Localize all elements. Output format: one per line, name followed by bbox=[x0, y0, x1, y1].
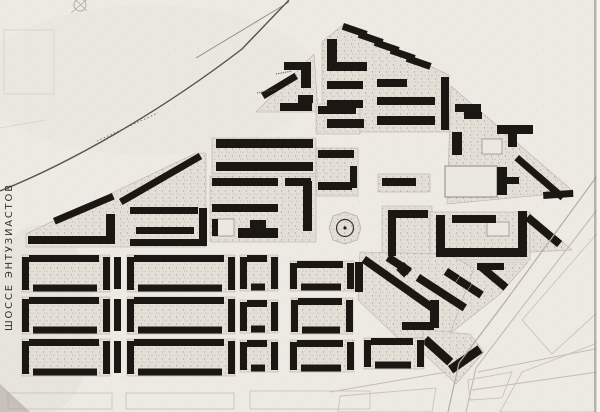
center-south-building bbox=[250, 220, 266, 229]
residential-block-building bbox=[228, 257, 235, 290]
wedge-building bbox=[28, 236, 114, 244]
center-south-building bbox=[212, 219, 218, 236]
residential-block-building bbox=[33, 285, 97, 292]
residential-block-building bbox=[33, 369, 97, 376]
pale-building bbox=[487, 222, 509, 236]
residential-block-building bbox=[127, 257, 134, 290]
pentagon-building bbox=[377, 116, 435, 125]
scan-edge-white bbox=[597, 0, 600, 412]
center-south-building bbox=[238, 228, 278, 238]
shosse-entuziastov-label: ШОССЕ ЭНТУЗИАСТОВ bbox=[4, 183, 15, 331]
residential-block-building bbox=[240, 342, 247, 370]
residential-block-building bbox=[138, 327, 222, 334]
residential-block-building bbox=[371, 338, 413, 345]
pale-hall-building bbox=[445, 166, 497, 197]
residential-block-building bbox=[290, 342, 297, 370]
diagonal-wedge-building bbox=[402, 322, 434, 330]
residential-block-building bbox=[301, 284, 341, 291]
residential-block-building bbox=[103, 257, 110, 290]
center-north-building bbox=[216, 139, 313, 148]
pentagon-building bbox=[327, 119, 364, 128]
midcol-building bbox=[318, 150, 354, 158]
residential-block-building bbox=[138, 369, 222, 376]
residential-block-building bbox=[290, 263, 297, 289]
residential-block-building bbox=[251, 326, 265, 333]
residential-block-building bbox=[271, 257, 278, 289]
triangle-building bbox=[497, 125, 533, 134]
midcol-building bbox=[318, 106, 356, 114]
residential-block-building bbox=[291, 300, 298, 332]
residential-block-building bbox=[347, 342, 354, 370]
residential-block-building bbox=[29, 339, 99, 346]
east-court-building bbox=[436, 248, 526, 257]
center-south-building bbox=[303, 181, 312, 231]
pentagon-building bbox=[441, 77, 449, 130]
urban-plan-map: ШОССЕ ЭНТУЗИАСТОВ bbox=[0, 0, 600, 412]
residential-block-building bbox=[240, 257, 247, 289]
east-plaza-building bbox=[382, 178, 416, 186]
triangle-building bbox=[497, 167, 507, 195]
center-north-building bbox=[216, 162, 313, 171]
scanned-plan-page: ШОССЕ ЭНТУЗИАСТОВ bbox=[0, 0, 600, 412]
midcol-building bbox=[318, 182, 352, 190]
residential-block-building bbox=[298, 298, 342, 305]
residential-block-building bbox=[240, 302, 247, 331]
inter-block-building bbox=[114, 341, 121, 373]
residential-block-building bbox=[251, 284, 265, 291]
inter-block-building bbox=[114, 257, 121, 289]
east-court-building bbox=[452, 215, 496, 223]
pentagon-building bbox=[327, 62, 367, 71]
residential-block-building bbox=[134, 255, 224, 262]
triangle-building bbox=[506, 177, 519, 184]
wedge-building bbox=[130, 239, 204, 246]
wedge-building bbox=[136, 227, 194, 234]
residential-block-building bbox=[346, 300, 353, 332]
residential-block-building bbox=[364, 340, 371, 367]
residential-block-building bbox=[375, 362, 411, 369]
residential-block-building bbox=[103, 299, 110, 332]
east-plaza-building bbox=[388, 210, 428, 218]
center-south-building bbox=[212, 178, 278, 186]
residential-block-building bbox=[22, 299, 29, 332]
east-court-building bbox=[518, 211, 527, 257]
residential-block-building bbox=[271, 342, 278, 370]
pale-building bbox=[482, 139, 502, 154]
triangle-building bbox=[464, 112, 482, 119]
residential-block-building bbox=[138, 285, 222, 292]
residential-block-building bbox=[22, 257, 29, 290]
hook-building bbox=[280, 103, 312, 111]
wedge-building bbox=[199, 208, 207, 246]
diagonal-wedge-building bbox=[355, 262, 363, 292]
residential-block-building bbox=[22, 341, 29, 374]
residential-block-building bbox=[297, 340, 343, 347]
residential-block-building bbox=[134, 297, 224, 304]
pentagon-building bbox=[377, 79, 407, 87]
residential-block-building bbox=[247, 255, 267, 262]
triangle-building bbox=[455, 104, 481, 112]
residential-block-building bbox=[134, 339, 224, 346]
hook-building bbox=[298, 95, 313, 103]
plaza-center-dot bbox=[343, 226, 346, 229]
hook-building bbox=[301, 62, 311, 88]
residential-block-building bbox=[103, 341, 110, 374]
wedge-building bbox=[130, 207, 198, 214]
residential-block-building bbox=[228, 299, 235, 332]
inter-block-building bbox=[114, 299, 121, 331]
residential-block-building bbox=[251, 365, 265, 372]
residential-block-building bbox=[347, 263, 354, 289]
residential-block-building bbox=[417, 340, 424, 367]
triangle-building bbox=[452, 132, 462, 155]
residential-block-building bbox=[302, 327, 340, 334]
residential-block-building bbox=[127, 341, 134, 374]
triangle-building bbox=[508, 134, 517, 147]
residential-block-building bbox=[29, 255, 99, 262]
pentagon-building bbox=[377, 97, 435, 105]
residential-block-building bbox=[247, 300, 267, 307]
residential-block-building bbox=[228, 341, 235, 374]
residential-block-building bbox=[29, 297, 99, 304]
wedge-building bbox=[106, 214, 115, 244]
scan-edge-line bbox=[594, 0, 597, 412]
midcol-building bbox=[350, 166, 357, 188]
residential-block-building bbox=[301, 365, 341, 372]
residential-block-building bbox=[247, 340, 267, 347]
residential-block-building bbox=[271, 302, 278, 331]
residential-block-building bbox=[127, 299, 134, 332]
residential-block-building bbox=[297, 261, 343, 268]
residential-block-building bbox=[33, 327, 97, 334]
pentagon-building bbox=[327, 81, 363, 89]
center-south-building bbox=[212, 204, 278, 212]
